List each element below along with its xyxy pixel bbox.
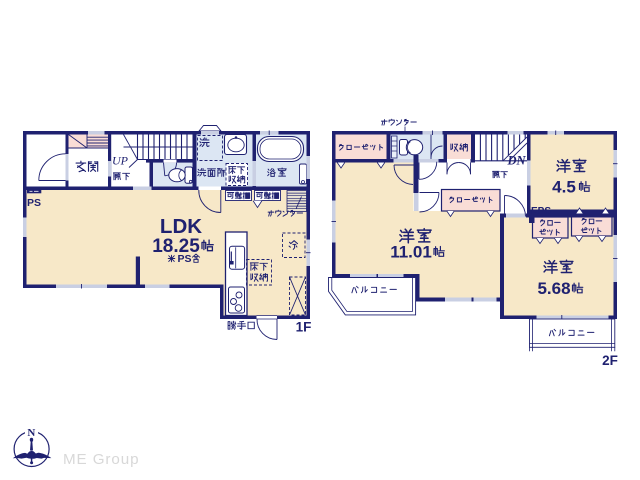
svg-text:N: N [27, 427, 35, 439]
svg-text:EPS: EPS [531, 206, 551, 217]
svg-text:1F: 1F [296, 320, 312, 335]
svg-text:5.68: 5.68 [537, 279, 570, 298]
svg-text:UP: UP [112, 154, 129, 168]
svg-text:PS: PS [27, 197, 41, 209]
svg-text:ME Group: ME Group [63, 451, 139, 468]
svg-text:2F: 2F [602, 353, 618, 368]
svg-text:11.01: 11.01 [390, 243, 432, 262]
svg-text:LDK: LDK [160, 215, 202, 238]
svg-text:PS: PS [177, 253, 191, 265]
svg-text:DN: DN [506, 154, 526, 168]
svg-text:4.5: 4.5 [552, 178, 576, 197]
svg-text:18.25: 18.25 [152, 236, 200, 257]
